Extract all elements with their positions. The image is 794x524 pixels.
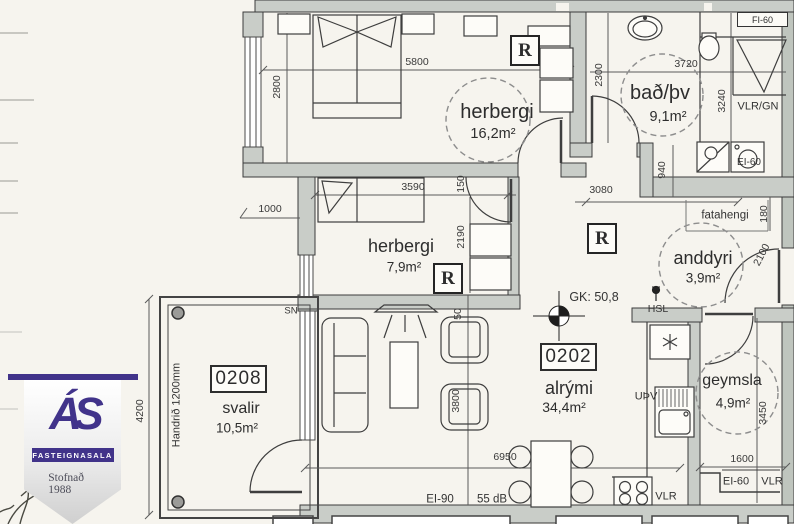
radiator-marker-bedroom2: R	[433, 263, 463, 294]
hsl-label: HSL	[648, 304, 668, 315]
room-area-entry: 3,9m²	[686, 271, 721, 285]
room-area-bedroom2: 7,9m²	[387, 260, 422, 274]
room-area-storage: 4,9m²	[716, 396, 751, 410]
shower-icon	[737, 40, 786, 92]
dim-2800: 2800	[272, 75, 283, 98]
dim-940: 940	[657, 161, 668, 179]
room-name-entry: anddyri	[673, 249, 732, 267]
bathroom-fixtures	[700, 12, 786, 143]
dim-2300: 2300	[594, 63, 605, 86]
dim-5800: 5800	[405, 57, 428, 68]
room-name-bedroom2: herbergi	[368, 237, 434, 255]
room-area-bedroom1: 16,2m²	[470, 127, 515, 142]
logo-initials: ÁS	[49, 388, 96, 440]
upv-dishwasher-label: UÞV	[635, 392, 658, 403]
hob-icon	[614, 477, 652, 505]
toilet-icon	[699, 33, 719, 60]
dim-3080: 3080	[589, 185, 612, 196]
room-area-balcony: 10,5m²	[216, 421, 258, 435]
freezer-star-icon	[650, 325, 690, 359]
armchair-icon	[441, 317, 488, 430]
dim-150: 150	[456, 175, 467, 193]
room-name-storage: geymsla	[702, 373, 762, 389]
kitchen-sink-icon	[655, 387, 694, 437]
fatahengi-label: fatahengi	[701, 210, 748, 222]
gk-level-label: GK: 50,8	[569, 291, 618, 304]
entry-door-arc-icon	[725, 249, 779, 303]
unit-number-balcony: 0208	[210, 365, 267, 393]
dim-3450: 3450	[758, 401, 769, 424]
fire-rating-ei90-label: EI-90	[426, 494, 454, 506]
dim-180: 180	[759, 205, 770, 223]
dim-2190: 2190	[456, 225, 467, 248]
bed1-icon	[313, 15, 401, 118]
dim-1600: 1600	[730, 454, 753, 465]
dim-3240: 3240	[717, 89, 728, 112]
dim-3590: 3590	[401, 182, 424, 193]
vlr-hob-label: VLR	[655, 492, 676, 503]
fire-rating-ei60-bottom-label: EI-60	[723, 477, 749, 488]
room-area-bath: 9,1m²	[649, 110, 686, 125]
dim-6950: 6950	[493, 452, 516, 463]
dim-4200: 4200	[135, 399, 146, 422]
tv-icon	[375, 305, 437, 338]
room-name-bedroom1: herbergi	[460, 102, 533, 122]
bedroom2-closet-icon	[470, 224, 511, 290]
coffee-table-icon	[390, 342, 418, 408]
bath-sink-icon	[628, 16, 662, 40]
vlr-bottom-right-label: VLR	[761, 477, 782, 488]
dim-3720: 3720	[674, 59, 697, 70]
sn-label: SN	[284, 306, 297, 316]
room-name-living: alrými	[545, 379, 593, 397]
vlr-gn-label: VLR/GN	[738, 102, 779, 113]
bedroom2-door-arc-icon	[466, 177, 511, 222]
radiator-marker-bedroom1: R	[510, 35, 540, 66]
room-name-balcony: svalir	[222, 401, 259, 417]
room-area-living: 34,4m²	[542, 400, 586, 414]
sound-rating-label: 55 dB	[477, 494, 507, 506]
left-tick-marks	[0, 33, 34, 409]
fire-rating-fi60-label: FI-60	[737, 12, 788, 27]
fire-rating-ei60-bath-label: EI-60	[737, 158, 761, 168]
floor-plan: herbergi 16,2m² bað/þv 9,1m² herbergi 7,…	[0, 0, 794, 524]
unit-number-living: 0202	[540, 343, 597, 371]
balcony-door-arc-icon	[250, 440, 302, 492]
logo-tagline: Stofnað 1988	[48, 472, 97, 496]
logo-subtitle: FASTEIGNASALA	[32, 448, 114, 462]
dim-3800: 3800	[451, 389, 462, 412]
handrail-label: Handrið 1200mm	[172, 363, 183, 447]
dining-set-icon	[509, 441, 593, 507]
storage-door-arc-icon	[705, 314, 753, 364]
room-name-bath: bað/þv	[630, 83, 690, 103]
hsl-valve-icon	[652, 287, 660, 302]
logo-bar	[8, 374, 138, 380]
dim-1000: 1000	[258, 204, 281, 215]
sofa-icon	[322, 318, 368, 432]
dim-50: 50	[453, 308, 464, 320]
radiator-marker-hall: R	[587, 223, 617, 254]
